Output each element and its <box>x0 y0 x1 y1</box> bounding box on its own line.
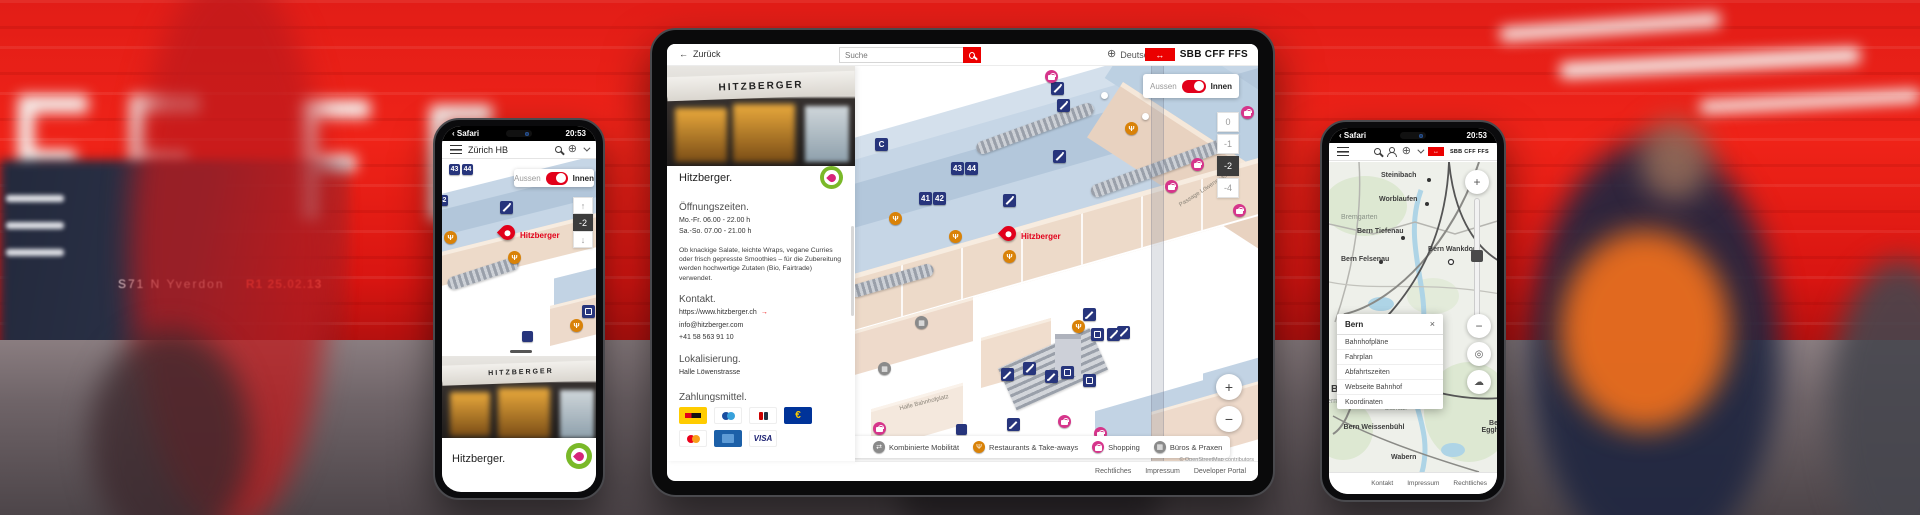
phone-link[interactable]: +41 58 563 91 10 <box>679 334 734 341</box>
popup-item-abfahrtszeiten[interactable]: Abfahrtszeiten <box>1337 365 1443 380</box>
escalator-icon <box>1051 82 1064 95</box>
track-sign: 44 <box>965 162 978 175</box>
storefront-sign: HITZBERGER <box>667 71 855 102</box>
fork-glyph: Ψ <box>511 253 517 262</box>
shopping-icon[interactable] <box>1165 180 1178 193</box>
restaurant-icon[interactable]: Ψ <box>1072 320 1085 333</box>
payment-heading: Zahlungsmittel. <box>679 392 747 403</box>
location-heading: Lokalisierung. <box>679 354 741 365</box>
camera-cutout <box>1400 132 1426 139</box>
phone-right-screen: ‹ Safari 20:53 ⊕ ↔ SBB CFF FFS <box>1329 128 1497 494</box>
phone-right: ‹ Safari 20:53 ⊕ ↔ SBB CFF FFS <box>1320 120 1506 502</box>
phone-right-street-map[interactable]: Steinibach Worblaufen Bremgarten Bern Ti… <box>1329 162 1497 476</box>
shopping-icon[interactable] <box>1191 158 1204 171</box>
category-chip-shopping[interactable]: Shopping <box>1092 441 1140 453</box>
floor-button-minus1[interactable]: -1 <box>1217 134 1239 154</box>
indoor-toggle[interactable]: Aussen Innen <box>514 169 594 187</box>
category-label: Kombinierte Mobilität <box>889 443 959 452</box>
stairs-icon <box>1083 308 1096 321</box>
toggle-off-label: Aussen <box>514 174 541 183</box>
sbb-logo-text: SBB CFF FFS <box>1450 149 1489 155</box>
visa-label: VISA <box>754 434 773 443</box>
hours-weekend: Sa.-So. 07.00 - 21.00 h <box>679 228 751 235</box>
payment-reka-icon <box>749 407 777 424</box>
sheet-title: Hitzberger. <box>452 453 505 465</box>
zoom-out-button[interactable]: − <box>1467 314 1491 338</box>
footer-link-rechtliches[interactable]: Rechtliches <box>1453 480 1487 487</box>
safari-label: Safari <box>1344 131 1366 140</box>
clock: 20:53 <box>566 129 586 138</box>
sbb-logo: ↔ SBB CFF FFS <box>1145 48 1248 61</box>
shopping-icon <box>1092 441 1104 453</box>
sheet-drag-handle[interactable] <box>510 350 532 353</box>
category-chip-mobility[interactable]: ⇄ Kombinierte Mobilität <box>873 441 959 453</box>
phone-left-indoor-map[interactable]: 43 44 42 Ψ Ψ Ψ Aussen Innen ↑ -2 ↓ <box>442 159 596 347</box>
category-chip-offices[interactable]: ▦ Büros & Praxen <box>1154 441 1223 453</box>
track-sign: 42 <box>933 192 946 205</box>
search-input[interactable] <box>839 47 963 63</box>
search-icon <box>969 52 975 59</box>
hours-weekday: Mo.-Fr. 06.00 - 22.00 h <box>679 217 750 224</box>
footer-link-impressum[interactable]: Impressum <box>1407 480 1439 487</box>
account-icon[interactable] <box>1387 147 1396 156</box>
website-row: https://www.hitzberger.ch → <box>679 309 768 316</box>
category-label: Restaurants & Take-aways <box>989 443 1078 452</box>
phone-left-bottom-sheet[interactable]: HITZBERGER Hitzberger. <box>442 347 596 487</box>
phone-left: ‹ Safari 20:53 Zürich HB ⊕ 43 <box>433 118 605 500</box>
clock: 20:53 <box>1467 131 1487 140</box>
hours-heading: Öffnungszeiten. <box>679 202 749 213</box>
storefront-photo: HITZBERGER <box>667 66 855 166</box>
phone-right-header: ⊕ ↔ SBB CFF FFS <box>1329 143 1497 161</box>
safari-label: Safari <box>457 129 479 138</box>
toggle-switch[interactable] <box>546 172 568 185</box>
storefront-sign-text: HITZBERGER <box>718 79 803 93</box>
station-title: Zürich HB <box>468 145 549 155</box>
floor-button-0[interactable]: 0 <box>1217 112 1239 132</box>
place-label: Bern Weissenbühl <box>1343 424 1405 431</box>
payment-maestro-icon <box>714 407 742 424</box>
train-front-stripe <box>6 222 64 229</box>
track-sign: 43 <box>449 164 460 175</box>
elevator-icon <box>582 305 595 318</box>
restaurant-icon: Ψ <box>973 441 985 453</box>
storefront-photo: HITZBERGER <box>442 356 596 438</box>
back-arrow-icon: ← <box>679 49 688 59</box>
payment-postcard-icon <box>714 430 742 447</box>
chevron-down-icon <box>1417 147 1424 154</box>
back-label: Zurück <box>693 49 721 59</box>
sbb-logo-text: SBB CFF FFS <box>1180 49 1248 60</box>
popup-title: Bern <box>1345 320 1363 329</box>
stairs-icon <box>1007 418 1020 431</box>
escalator-icon <box>1023 362 1036 375</box>
station-popup: Bern × Bahnhofpläne Fahrplan Abfahrtszei… <box>1337 314 1443 409</box>
payment-row-1: € <box>679 407 812 424</box>
globe-icon: ⊕ <box>1107 49 1116 60</box>
restaurant-icon[interactable]: Ψ <box>949 230 962 243</box>
tablet-indoor-map[interactable]: C 43 44 41 42 Ψ <box>855 66 1258 462</box>
sector-sign: C <box>875 138 888 151</box>
floor-up-button[interactable]: ↑ <box>573 197 593 214</box>
toggle-off-label: Aussen <box>1150 82 1177 91</box>
phone-right-footer: Kontakt Impressum Rechtliches <box>1329 472 1497 494</box>
footer-link-rechtliches[interactable]: Rechtliches <box>1095 468 1131 475</box>
shopping-icon[interactable] <box>1058 415 1071 428</box>
restaurant-icon[interactable]: Ψ <box>889 212 902 225</box>
payment-postfinance-icon <box>679 407 707 424</box>
payment-mastercard-icon <box>679 430 707 447</box>
stairs-icon <box>1045 370 1058 383</box>
phone-left-screen: ‹ Safari 20:53 Zürich HB ⊕ 43 <box>442 126 596 492</box>
locate-icon[interactable]: ◎ <box>1467 342 1491 366</box>
info-sign <box>956 424 967 435</box>
pin-label: Hitzberger <box>520 231 560 240</box>
track-sign-partial: 42 <box>442 195 448 206</box>
place-label: Bern Felsenau <box>1341 256 1389 263</box>
phone-left-header: Zürich HB ⊕ <box>442 141 596 159</box>
tablet: ← Zurück ⊕ Deutsch ↔ SBB CFF FFS <box>650 28 1275 497</box>
menu-icon[interactable] <box>450 145 462 154</box>
weather-cloud-icon[interactable]: ☁ <box>1467 370 1491 394</box>
zoom-slider-knob[interactable] <box>1471 250 1483 262</box>
category-bar: ⇄ Kombinierte Mobilität Ψ Restaurants & … <box>855 436 1230 458</box>
floor-down-button[interactable]: ↓ <box>573 231 593 248</box>
pillar <box>1101 92 1108 99</box>
category-label: Shopping <box>1108 443 1140 452</box>
zoom-in-button[interactable]: + <box>1216 374 1242 400</box>
floor-current: -2 <box>573 214 593 231</box>
fork-glyph: Ψ <box>447 233 453 242</box>
toggle-on-label: Innen <box>573 174 594 183</box>
info-sign <box>522 331 533 342</box>
place-label: Bremgarten <box>1341 214 1378 221</box>
track-sign: 43 <box>951 162 964 175</box>
track-sign: 44 <box>462 164 473 175</box>
restaurant-icon[interactable]: Ψ <box>1003 250 1016 263</box>
place-label: Wabern <box>1391 454 1416 461</box>
escalator-icon <box>1057 99 1070 112</box>
description-text: Ob knackige Salate, leichte Wraps, vegan… <box>679 246 843 283</box>
email-link[interactable]: info@hitzberger.com <box>679 322 743 329</box>
website-link[interactable]: https://www.hitzberger.ch <box>679 309 757 316</box>
shopping-icon[interactable] <box>1233 204 1246 217</box>
chevron-down-icon <box>583 145 590 152</box>
office-icon: ▦ <box>1154 441 1166 453</box>
escalator-icon <box>1003 194 1016 207</box>
escalator-icon <box>1107 328 1120 341</box>
shopping-icon[interactable] <box>1241 106 1254 119</box>
pillar <box>1142 113 1149 120</box>
office-icon[interactable]: ▦ <box>878 362 891 375</box>
search-icon[interactable] <box>555 146 562 153</box>
search-icon[interactable] <box>1374 148 1381 155</box>
escalator-icon <box>500 201 513 214</box>
place-label: Bern Tiefenau <box>1357 228 1404 235</box>
sbb-flag-icon: ↔ <box>1145 48 1175 61</box>
popup-item-fahrplan[interactable]: Fahrplan <box>1337 350 1443 365</box>
train-front-stripe <box>6 249 64 256</box>
popup-item-webseite[interactable]: Webseite Bahnhof <box>1337 380 1443 395</box>
escalator-icon <box>1053 150 1066 163</box>
mobility-icon: ⇄ <box>873 441 885 453</box>
back-button[interactable]: ← Zurück <box>679 49 721 59</box>
storefront-sign-text: HITZBERGER <box>488 368 554 377</box>
camera-lens <box>1419 134 1423 138</box>
hitzberger-logo-badge <box>820 166 843 189</box>
payment-visa-icon: VISA <box>749 430 777 447</box>
panel-scrollbar[interactable] <box>851 226 854 316</box>
floor-button-minus2[interactable]: -2 <box>1217 156 1239 176</box>
search-bar <box>839 47 981 63</box>
restaurant-icon: Ψ <box>570 319 583 332</box>
back-to-app-link[interactable]: ‹ Safari <box>452 129 479 138</box>
zoom-in-button[interactable]: + <box>1465 170 1489 194</box>
category-label: Büros & Praxen <box>1170 443 1223 452</box>
place-label: Steinibach <box>1381 172 1416 179</box>
toggle-on-label: Innen <box>1211 82 1232 91</box>
elevator-icon <box>1061 366 1074 379</box>
location-value: Halle Löwenstrasse <box>679 369 740 376</box>
payment-euro-icon: € <box>784 407 812 424</box>
back-to-app-link[interactable]: ‹ Safari <box>1339 131 1366 140</box>
floor-button-minus4[interactable]: -4 <box>1217 178 1239 198</box>
tablet-topbar: ← Zurück ⊕ Deutsch ↔ SBB CFF FFS <box>667 44 1258 66</box>
panel-title: Hitzberger. <box>679 172 732 184</box>
restaurant-icon: Ψ <box>508 251 521 264</box>
popup-close-icon[interactable]: × <box>1430 319 1435 329</box>
contact-heading: Kontakt. <box>679 294 716 305</box>
sbb-flag-icon: ↔ <box>1428 147 1444 156</box>
shopping-icon[interactable] <box>1045 70 1058 83</box>
tablet-screen: ← Zurück ⊕ Deutsch ↔ SBB CFF FFS <box>667 44 1258 481</box>
globe-icon[interactable]: ⊕ <box>568 144 577 155</box>
menu-icon[interactable] <box>1337 147 1349 156</box>
tablet-detail-panel: HITZBERGER Hitzberger. Öffnungszeiten. M… <box>667 66 855 461</box>
hero-composite: S71 N Yverdon R1 25.02.13 ‹ Safari 20:53… <box>0 0 1920 515</box>
track-sign: 41 <box>919 192 932 205</box>
pin-label: Hitzberger <box>1021 232 1061 241</box>
search-button[interactable] <box>963 47 981 63</box>
camera-cutout <box>506 130 532 137</box>
camera-lens <box>525 132 529 136</box>
place-label: Worblaufen <box>1379 196 1417 203</box>
orange-jacket <box>1560 230 1730 430</box>
zoom-out-button[interactable]: − <box>1216 406 1242 432</box>
popup-item-bahnhofplaene[interactable]: Bahnhofpläne <box>1337 335 1443 350</box>
elevator-icon <box>1083 374 1096 387</box>
shopping-icon[interactable] <box>873 422 886 435</box>
storefront-sign: HITZBERGER <box>442 360 596 385</box>
tablet-footer: Rechtliches Impressum Developer Portal <box>855 461 1258 481</box>
footer-link-impressum[interactable]: Impressum <box>1145 468 1180 475</box>
blurred-head <box>1640 120 1710 200</box>
toggle-switch[interactable] <box>1182 80 1206 93</box>
place-label: Bern Egghölzli <box>1475 420 1497 434</box>
hitzberger-logo-badge <box>566 443 592 469</box>
fork-glyph: Ψ <box>573 321 579 330</box>
restaurant-icon[interactable]: Ψ <box>1125 122 1138 135</box>
elevator-icon <box>1091 328 1104 341</box>
stairs-icon <box>1001 368 1014 381</box>
train-front-stripe <box>6 195 64 202</box>
office-icon[interactable]: ▦ <box>915 316 928 329</box>
category-chip-restaurants[interactable]: Ψ Restaurants & Take-aways <box>973 441 1078 453</box>
popup-item-koordinaten[interactable]: Koordinaten <box>1337 395 1443 409</box>
restaurant-icon: Ψ <box>444 231 457 244</box>
external-link-arrow-icon: → <box>761 309 768 316</box>
globe-icon[interactable]: ⊕ <box>1402 146 1411 157</box>
footer-link-developer-portal[interactable]: Developer Portal <box>1194 468 1246 475</box>
footer-link-kontakt[interactable]: Kontakt <box>1371 480 1393 487</box>
payment-row-2: VISA <box>679 430 777 447</box>
structural-column <box>1151 66 1164 462</box>
indoor-toggle[interactable]: Aussen Innen <box>1143 74 1239 98</box>
